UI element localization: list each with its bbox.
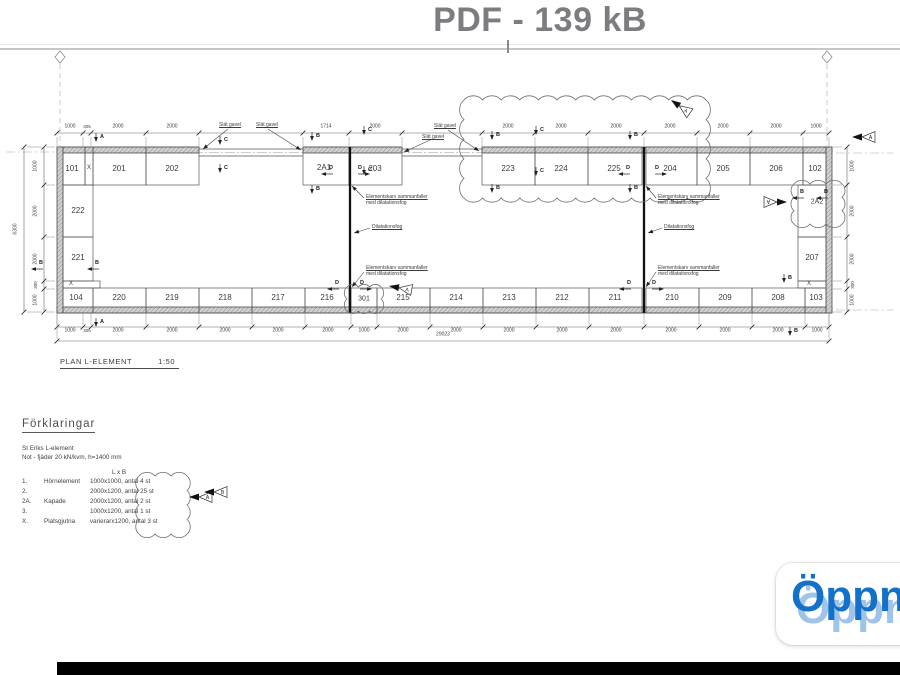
plan-linework: AAAAAB: [0, 0, 900, 675]
section-marker-D: D: [626, 165, 630, 171]
legend-rows: 1.Hörnelement1000x1000, antal 4 st2.2000…: [22, 477, 158, 527]
dim-top: 2000: [555, 125, 566, 130]
section-marker-D: D: [655, 165, 659, 171]
dim-bottom: 305: [83, 329, 91, 334]
element-label-X: X: [87, 165, 91, 171]
bottom-bar: [57, 662, 900, 675]
dim-top: 2000: [770, 125, 781, 130]
dim-bottom: 2000: [166, 329, 177, 334]
element-label-203: 203: [368, 165, 381, 173]
dim-left: 2000: [34, 205, 39, 216]
section-marker-B: B: [316, 186, 320, 192]
element-label-211: 211: [609, 294, 622, 302]
dim-left: 1000: [34, 294, 39, 305]
dim-bottom: 2000: [503, 329, 514, 334]
section-marker-B: B: [634, 132, 638, 138]
section-marker-D: D: [652, 280, 656, 286]
element-label-201: 201: [112, 165, 125, 173]
dim-bottom: 2000: [610, 329, 621, 334]
svg-text:A: A: [206, 495, 210, 501]
plan-caption: PLAN L-ELEMENT1:50: [60, 357, 179, 369]
section-marker-B: B: [39, 260, 43, 266]
element-label-101: 101: [65, 165, 78, 173]
section-marker-B: B: [788, 275, 792, 281]
dim-bottom: 2000: [450, 329, 461, 334]
dim-total-height: 6300: [14, 223, 19, 234]
annotation-note: Slät gavel: [422, 134, 444, 140]
annotation-note: Elementskarv sammanfallermed dilatations…: [658, 265, 720, 278]
svg-text:A: A: [869, 135, 873, 141]
legend-heading: Förklaringar: [22, 418, 95, 433]
element-label-220: 220: [112, 294, 125, 302]
dim-bottom: 1000: [358, 329, 369, 334]
svg-text:B: B: [221, 490, 225, 496]
dim-bottom: 2000: [772, 329, 783, 334]
dim-top: 2000: [166, 125, 177, 130]
element-label-222: 222: [71, 207, 84, 215]
plan-caption-text: PLAN L-ELEMENT: [60, 357, 132, 366]
legend-subtitle-2: Not - fjäder 20 kN/kvm, h=1400 mm: [22, 453, 158, 462]
svg-text:A: A: [766, 198, 770, 204]
section-marker-B: B: [95, 260, 99, 266]
element-label-X: X: [69, 281, 73, 287]
annotation-note: Slät gavel: [219, 122, 241, 128]
dim-top: 2000: [502, 125, 513, 130]
section-marker-B: B: [316, 133, 320, 139]
dim-right: 1000: [851, 294, 856, 305]
dim-top: 1714: [320, 125, 331, 130]
dim-bottom: 2000: [556, 329, 567, 334]
section-marker-C: C: [224, 137, 228, 143]
element-label-103: 103: [809, 294, 822, 302]
dim-bottom: 1000: [811, 329, 822, 334]
element-label-2A2: 2A2: [811, 199, 823, 206]
dim-bottom: 2000: [665, 329, 676, 334]
dim-top: 2000: [369, 125, 380, 130]
section-marker-B: B: [794, 328, 798, 334]
element-label-204: 204: [663, 165, 676, 173]
element-label-205: 205: [716, 165, 729, 173]
element-label-102: 102: [808, 165, 821, 173]
section-marker-B: B: [824, 189, 828, 195]
dim-right: 2000: [851, 205, 856, 216]
dim-top: 2000: [717, 125, 728, 130]
legend: Förklaringar St Eriks L-element Not - fj…: [22, 414, 158, 527]
element-label-224: 224: [554, 165, 567, 173]
element-label-206: 206: [769, 165, 782, 173]
section-marker-D: D: [358, 165, 362, 171]
dim-top: 1000: [64, 125, 75, 130]
dim-top: 1000: [810, 125, 821, 130]
element-label-217: 217: [271, 294, 284, 302]
legend-row: 2.2000x1200, antal 25 st: [22, 487, 158, 497]
section-marker-C: C: [540, 168, 544, 174]
element-label-207: 207: [805, 254, 818, 262]
element-label-216: 216: [320, 294, 333, 302]
element-label-215: 215: [396, 294, 409, 302]
element-label-X: X: [807, 281, 811, 287]
dim-right: 2000: [851, 253, 856, 264]
element-label-301: 301: [358, 296, 370, 303]
element-label-214: 214: [449, 294, 462, 302]
revision-flag: A: [189, 492, 212, 503]
element-label-225: 225: [607, 165, 620, 173]
annotation-note: Elementskarv sammanfallermed dilatations…: [366, 265, 428, 278]
element-label-213: 213: [502, 294, 515, 302]
section-marker-C: C: [224, 165, 228, 171]
annotation-note: Dilatationsfog: [372, 224, 402, 230]
element-label-210: 210: [665, 294, 678, 302]
element-label-209: 209: [718, 294, 731, 302]
element-label-212: 212: [555, 294, 568, 302]
revision-flag: A: [764, 197, 787, 208]
section-marker-D: D: [335, 280, 339, 286]
element-label-104: 104: [69, 294, 82, 302]
section-marker-B: B: [634, 185, 638, 191]
dim-top: 2000: [610, 125, 621, 130]
open-button[interactable]: Öppn Öppn: [776, 563, 900, 645]
plan-drawing: AAAAAB AABBCCCCBBCCBBDDDDDDDDBBBBBBSlät …: [0, 0, 900, 675]
dim-bottom: 2000: [112, 329, 123, 334]
section-marker-B: B: [496, 185, 500, 191]
dim-bottom: 2000: [322, 329, 333, 334]
dim-bottom: 1000: [64, 329, 75, 334]
annotation-note: Dilatationsfog: [664, 224, 694, 230]
dim-bottom: 2000: [272, 329, 283, 334]
section-marker-D: D: [627, 280, 631, 286]
element-label-218: 218: [218, 294, 231, 302]
legend-row: 1.Hörnelement1000x1000, antal 4 st: [22, 477, 158, 487]
dim-right: 1000: [851, 160, 856, 171]
dim-bottom: 2000: [397, 329, 408, 334]
svg-text:A: A: [682, 108, 689, 115]
section-marker-D: D: [360, 280, 364, 286]
section-marker-B: B: [800, 189, 804, 195]
dim-right: 300: [851, 281, 856, 289]
annotation-note: Elementskarv sammanfallermed dilatations…: [658, 194, 720, 207]
legend-subtitle-1: St Eriks L-element: [22, 444, 158, 453]
element-label-2A1: 2A1: [317, 164, 331, 172]
element-label-223: 223: [501, 165, 514, 173]
section-marker-A: A: [100, 134, 104, 140]
legend-row: X.Platsgjutnavarierarx1200, antal 3 st: [22, 517, 158, 527]
legend-row: 2A.Kapade2000x1200, antal 2 st: [22, 497, 158, 507]
dim-left: 1000: [34, 160, 39, 171]
annotation-note: Slät gavel: [434, 123, 456, 129]
element-label-219: 219: [165, 294, 178, 302]
dim-total-width: 29023: [436, 333, 450, 338]
section-marker-C: C: [540, 127, 544, 133]
open-button-label: Öppn: [791, 572, 900, 622]
element-label-221: 221: [71, 254, 84, 262]
page: PDF - 139 kB AAAAAB AABBCCCCBBCCBBDDDDDD…: [0, 0, 900, 675]
dim-bottom: 2000: [719, 329, 730, 334]
element-label-202: 202: [165, 165, 178, 173]
dim-left: 2000: [34, 253, 39, 264]
annotation-note: Slät gavel: [256, 122, 278, 128]
section-marker-B: B: [496, 132, 500, 138]
dim-top: 2000: [664, 125, 675, 130]
section-marker-A: A: [100, 319, 104, 325]
plan-scale: 1:50: [158, 357, 175, 366]
dim-left: 300: [34, 281, 39, 289]
revision-flag: B: [204, 487, 227, 498]
revision-flag: A: [852, 132, 875, 143]
element-label-208: 208: [771, 294, 784, 302]
legend-column-header: L x B: [112, 469, 158, 476]
revision-flag: A: [668, 95, 693, 117]
dim-top: 2000: [112, 125, 123, 130]
legend-row: 3.1000x1200, antal 1 st: [22, 507, 158, 517]
dim-bottom: 2000: [219, 329, 230, 334]
annotation-note: Elementskarv sammanfallermed dilatations…: [366, 194, 428, 207]
dim-top: 305: [83, 125, 91, 130]
